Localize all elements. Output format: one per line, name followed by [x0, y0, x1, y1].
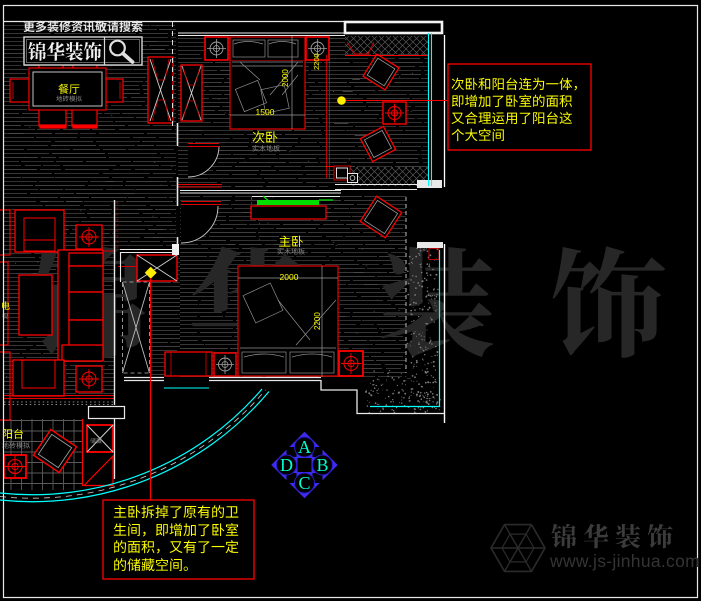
- svg-text:2200: 2200: [313, 312, 322, 330]
- svg-text:2000: 2000: [280, 272, 299, 282]
- svg-text:2200: 2200: [312, 53, 321, 70]
- svg-text:2000: 2000: [281, 69, 290, 87]
- svg-text:1500: 1500: [256, 107, 275, 117]
- svg-text:D: D: [280, 455, 293, 475]
- svg-text:B: B: [316, 455, 328, 475]
- svg-text:www.js-jinhua.com: www.js-jinhua.com: [549, 551, 700, 571]
- svg-text:A: A: [298, 437, 311, 457]
- svg-text:C: C: [298, 473, 310, 493]
